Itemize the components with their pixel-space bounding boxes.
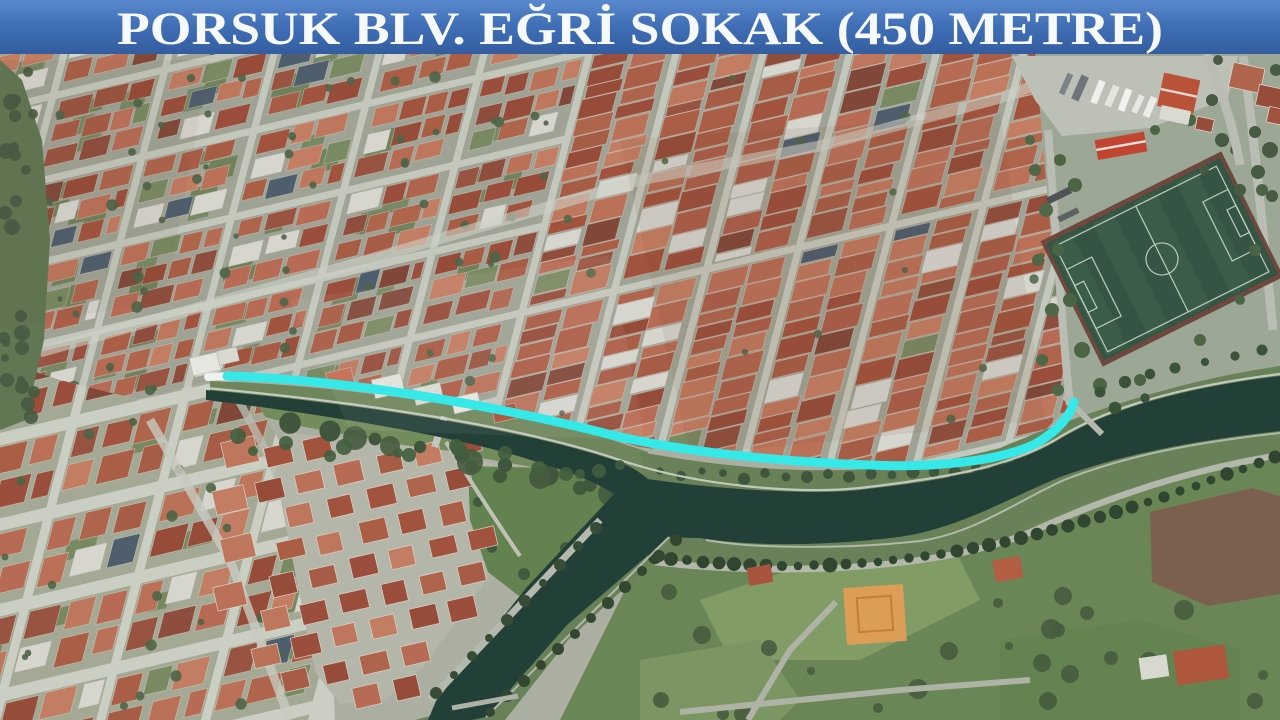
svg-text:PORSUK BLV. EĞRİ SOKAK (450 ME: PORSUK BLV. EĞRİ SOKAK (450 METRE) — [117, 3, 1163, 55]
